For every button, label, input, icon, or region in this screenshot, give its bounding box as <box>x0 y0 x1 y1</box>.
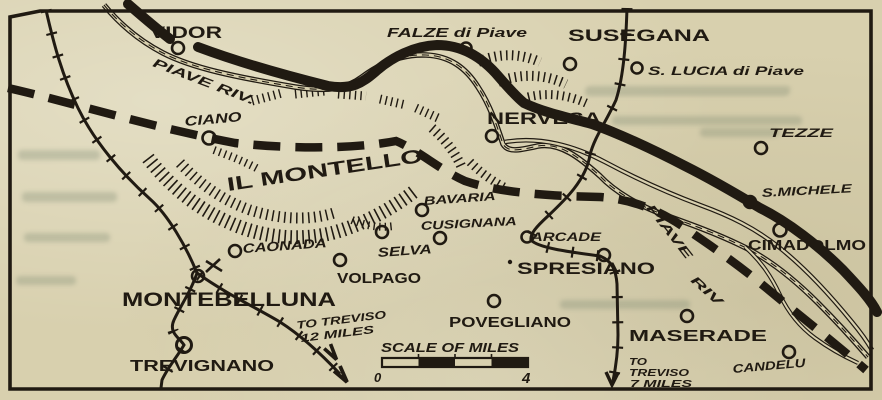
town-marker-tezze <box>755 142 767 154</box>
town-label-selva: SELVA <box>377 241 432 260</box>
region-label-montello: IL MONTELLO <box>226 146 425 196</box>
town-label-montebelluna: MONTEBELLUNA <box>122 290 336 311</box>
town-marker-cimadolmo <box>774 224 787 237</box>
town-marker-nervesa <box>486 130 498 142</box>
town-label-nervesa: NERVESA <box>487 110 601 128</box>
scale-title: SCALE OF MILES <box>381 341 520 355</box>
town-label-candelu: CANDELU <box>732 356 806 376</box>
hachure-row <box>416 108 438 118</box>
hachure-row <box>338 94 366 96</box>
scale-bar-segment <box>419 358 456 367</box>
town-marker-volpago <box>334 254 346 266</box>
town-label-caonada: CAONADA <box>242 235 327 256</box>
town-label-vidor: VIDOR <box>150 23 222 42</box>
town-label-falze: FALZE di Piave <box>387 25 527 40</box>
scale-end: 4 <box>521 370 531 387</box>
town-marker-povegliano <box>488 295 500 307</box>
route-label-treviso7-line2: TREVISO <box>629 368 689 379</box>
route-label-treviso7-line3: 7 MILES <box>630 379 693 390</box>
town-marker-selva <box>376 226 388 238</box>
town-label-arcade: ARCADE <box>530 230 603 244</box>
town-label-cusignana: CUSIGNANA <box>420 214 517 233</box>
montello-piave-map: VIDOR FALZE di Piave SUSEGANA S. LUCIA d… <box>0 0 882 400</box>
town-marker-cusignana <box>434 232 446 244</box>
junction-cross <box>206 259 222 272</box>
town-marker-s-lucia <box>632 63 643 74</box>
town-label-s-michele: S.MICHELE <box>761 181 853 200</box>
town-label-ciano: CIANO <box>184 109 243 129</box>
town-label-tezze: TEZZE <box>769 126 835 140</box>
hachure-row <box>214 150 260 170</box>
town-label-susegana: SUSEGANA <box>568 27 710 45</box>
town-label-spresiano: SPRESIANO <box>517 260 655 278</box>
town-marker-caonada <box>229 245 241 257</box>
town-label-trevignano: TREVIGNANO <box>130 358 274 375</box>
town-marker-susegana <box>564 58 576 70</box>
town-label-volpago: VOLPAGO <box>337 270 421 287</box>
river-label-riv-se: RIV <box>688 273 727 310</box>
scale-start: 0 <box>374 370 382 385</box>
town-marker-maserade <box>681 310 693 322</box>
scale-bar-segment <box>492 358 529 367</box>
town-dot-spresiano <box>508 260 512 264</box>
town-label-cimadolmo: CIMADOLMO <box>748 238 866 254</box>
town-marker-vidor <box>172 42 184 54</box>
town-label-s-lucia: S. LUCIA di Piave <box>648 64 804 78</box>
map-canvas: VIDOR FALZE di Piave SUSEGANA S. LUCIA d… <box>0 0 882 400</box>
scale-of-miles: SCALE OF MILES 0 4 <box>374 341 531 387</box>
town-label-bavaria: BAVARIA <box>423 189 496 208</box>
hachure-row <box>380 99 406 105</box>
railroad-arrowhead <box>324 344 338 360</box>
town-label-maserade: MASERADE <box>629 328 767 345</box>
town-label-povegliano: POVEGLIANO <box>449 315 571 331</box>
river-label-piave-se: PIAVE <box>644 201 697 263</box>
hachure-row <box>528 95 586 103</box>
route-label-treviso7-line1: TO <box>629 357 647 368</box>
